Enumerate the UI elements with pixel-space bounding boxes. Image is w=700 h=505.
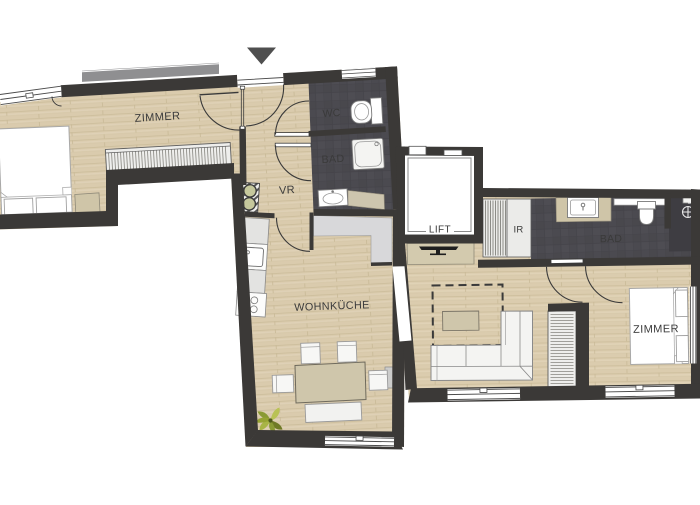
svg-text:BAD: BAD xyxy=(600,233,623,245)
svg-text:IR: IR xyxy=(513,225,523,236)
svg-text:ZIMMER: ZIMMER xyxy=(633,323,679,336)
svg-text:LIFT: LIFT xyxy=(429,225,451,236)
svg-text:BAD: BAD xyxy=(321,153,345,166)
svg-text:VR: VR xyxy=(279,184,296,197)
svg-text:WC: WC xyxy=(322,107,341,120)
